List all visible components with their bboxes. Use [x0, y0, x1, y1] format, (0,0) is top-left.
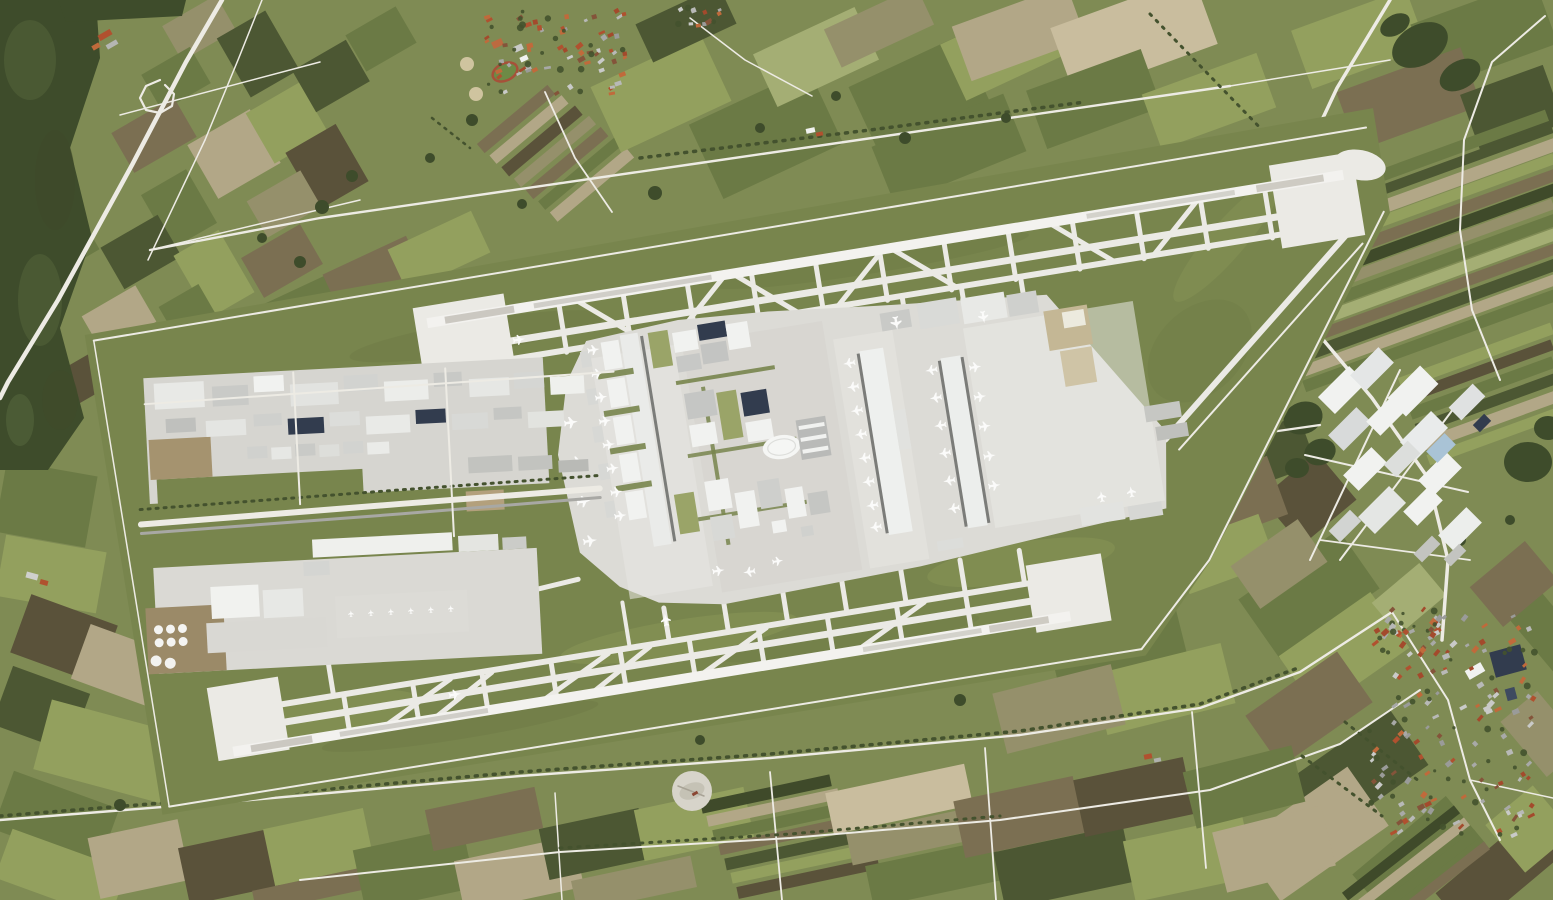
house — [537, 25, 542, 31]
house — [502, 43, 507, 47]
tree — [525, 61, 532, 68]
tree — [1514, 826, 1519, 831]
tree — [490, 25, 494, 29]
tree — [1484, 726, 1491, 733]
tree — [1472, 799, 1479, 806]
tree — [1427, 697, 1432, 702]
house — [532, 19, 538, 25]
tree — [553, 36, 558, 41]
aerial-photo — [0, 0, 1553, 900]
tree — [1369, 800, 1374, 805]
tree — [1433, 769, 1436, 772]
tree — [1462, 779, 1466, 783]
house — [696, 23, 701, 27]
tree — [1440, 824, 1446, 830]
tree — [1446, 777, 1451, 782]
tree — [1449, 658, 1452, 661]
tree — [1486, 759, 1490, 763]
tree — [1402, 716, 1408, 722]
tree — [1498, 832, 1503, 837]
house — [614, 33, 620, 39]
tree — [1524, 683, 1531, 690]
tree — [1431, 607, 1438, 614]
tree — [562, 29, 566, 33]
tree — [588, 43, 593, 48]
house — [564, 14, 569, 19]
tree — [1426, 817, 1430, 821]
tree — [1380, 647, 1386, 653]
tree — [1396, 695, 1401, 700]
tree — [499, 89, 504, 94]
tree — [1401, 612, 1404, 615]
house — [527, 47, 531, 52]
tree — [1513, 766, 1517, 770]
tree — [519, 21, 526, 28]
tree — [512, 48, 516, 52]
tree — [545, 15, 551, 21]
tree — [675, 21, 681, 27]
tree — [498, 63, 501, 66]
tree — [1459, 831, 1464, 836]
tree — [685, 5, 692, 12]
tree — [1377, 636, 1382, 641]
tree — [1410, 699, 1416, 705]
tree — [1452, 726, 1455, 729]
tree — [711, 19, 716, 24]
tree — [487, 83, 490, 86]
tree — [521, 10, 525, 14]
tree — [1399, 621, 1404, 626]
tree — [540, 51, 544, 55]
tree — [1390, 779, 1396, 785]
tree — [1485, 787, 1489, 791]
tree — [620, 47, 625, 52]
tree — [1412, 625, 1415, 628]
tree — [557, 66, 564, 73]
tree — [1507, 646, 1513, 652]
tree — [1390, 628, 1396, 634]
house — [689, 22, 694, 25]
tree — [1520, 749, 1527, 756]
tree — [1373, 755, 1379, 761]
tree — [1489, 675, 1494, 680]
tree — [1500, 727, 1505, 732]
tree — [1386, 650, 1390, 654]
tree — [1531, 649, 1538, 656]
tree — [518, 16, 523, 21]
tree — [1521, 648, 1526, 653]
tree — [577, 89, 583, 95]
tree — [578, 66, 585, 73]
tree — [1432, 622, 1436, 626]
tree — [1367, 729, 1372, 734]
tree — [1390, 794, 1395, 799]
satellite-view-munich-airport — [0, 0, 1553, 900]
tree — [588, 51, 594, 57]
tree — [1429, 795, 1433, 799]
tree — [1503, 651, 1507, 655]
tree — [1425, 688, 1431, 694]
